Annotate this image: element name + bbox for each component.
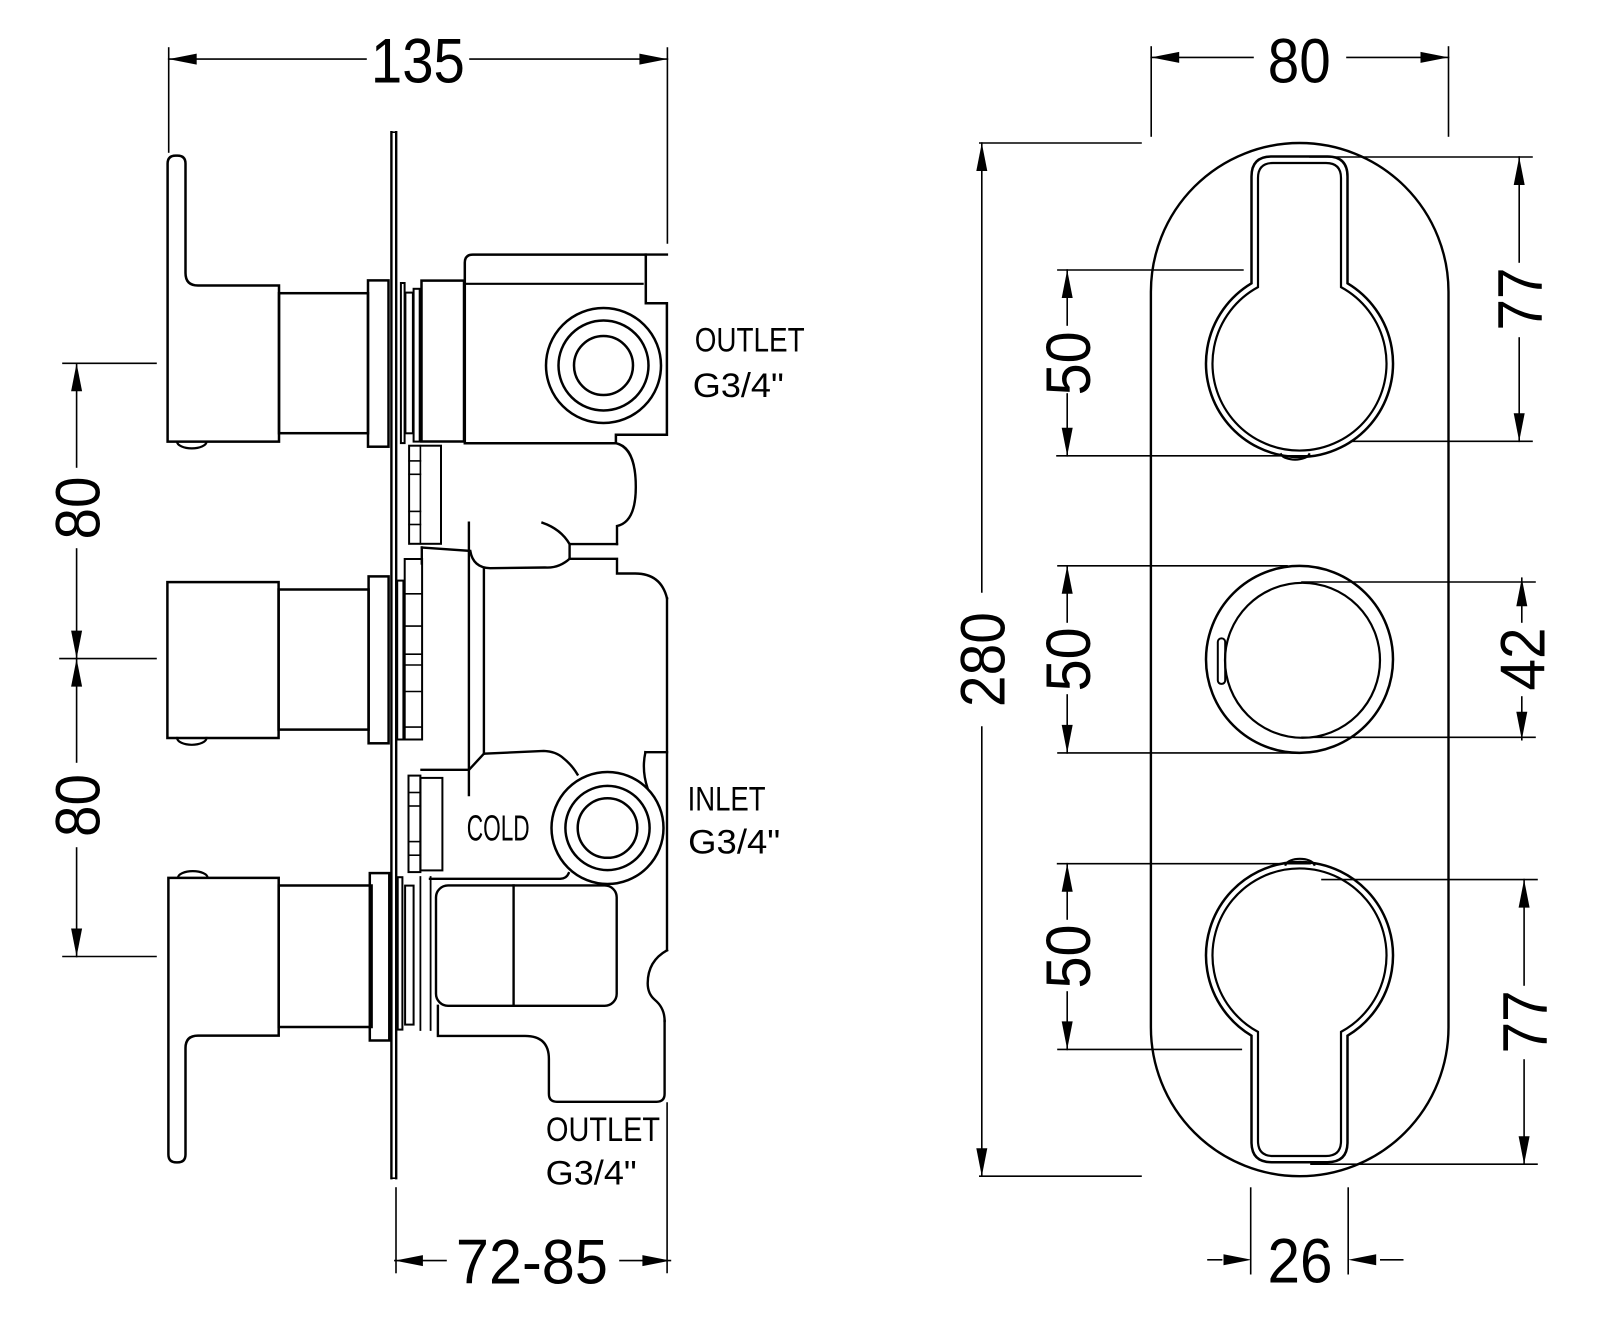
- svg-text:80: 80: [43, 774, 113, 837]
- svg-text:77: 77: [1491, 990, 1561, 1053]
- svg-text:135: 135: [371, 26, 465, 96]
- svg-text:42: 42: [1489, 628, 1559, 691]
- svg-text:G3/4": G3/4": [693, 367, 784, 405]
- svg-text:50: 50: [1034, 331, 1104, 395]
- svg-text:OUTLET: OUTLET: [695, 322, 805, 360]
- svg-text:26: 26: [1268, 1226, 1333, 1296]
- svg-text:COLD: COLD: [467, 808, 530, 849]
- svg-text:INLET: INLET: [688, 781, 766, 819]
- svg-text:280: 280: [949, 612, 1019, 707]
- svg-text:77: 77: [1486, 268, 1556, 331]
- svg-text:OUTLET: OUTLET: [546, 1111, 660, 1149]
- svg-text:G3/4": G3/4": [546, 1155, 637, 1193]
- svg-text:80: 80: [43, 477, 113, 540]
- svg-text:G3/4": G3/4": [688, 824, 780, 862]
- svg-text:72-85: 72-85: [456, 1227, 608, 1297]
- svg-text:50: 50: [1034, 925, 1104, 989]
- svg-text:80: 80: [1268, 27, 1331, 97]
- svg-text:50: 50: [1034, 627, 1104, 691]
